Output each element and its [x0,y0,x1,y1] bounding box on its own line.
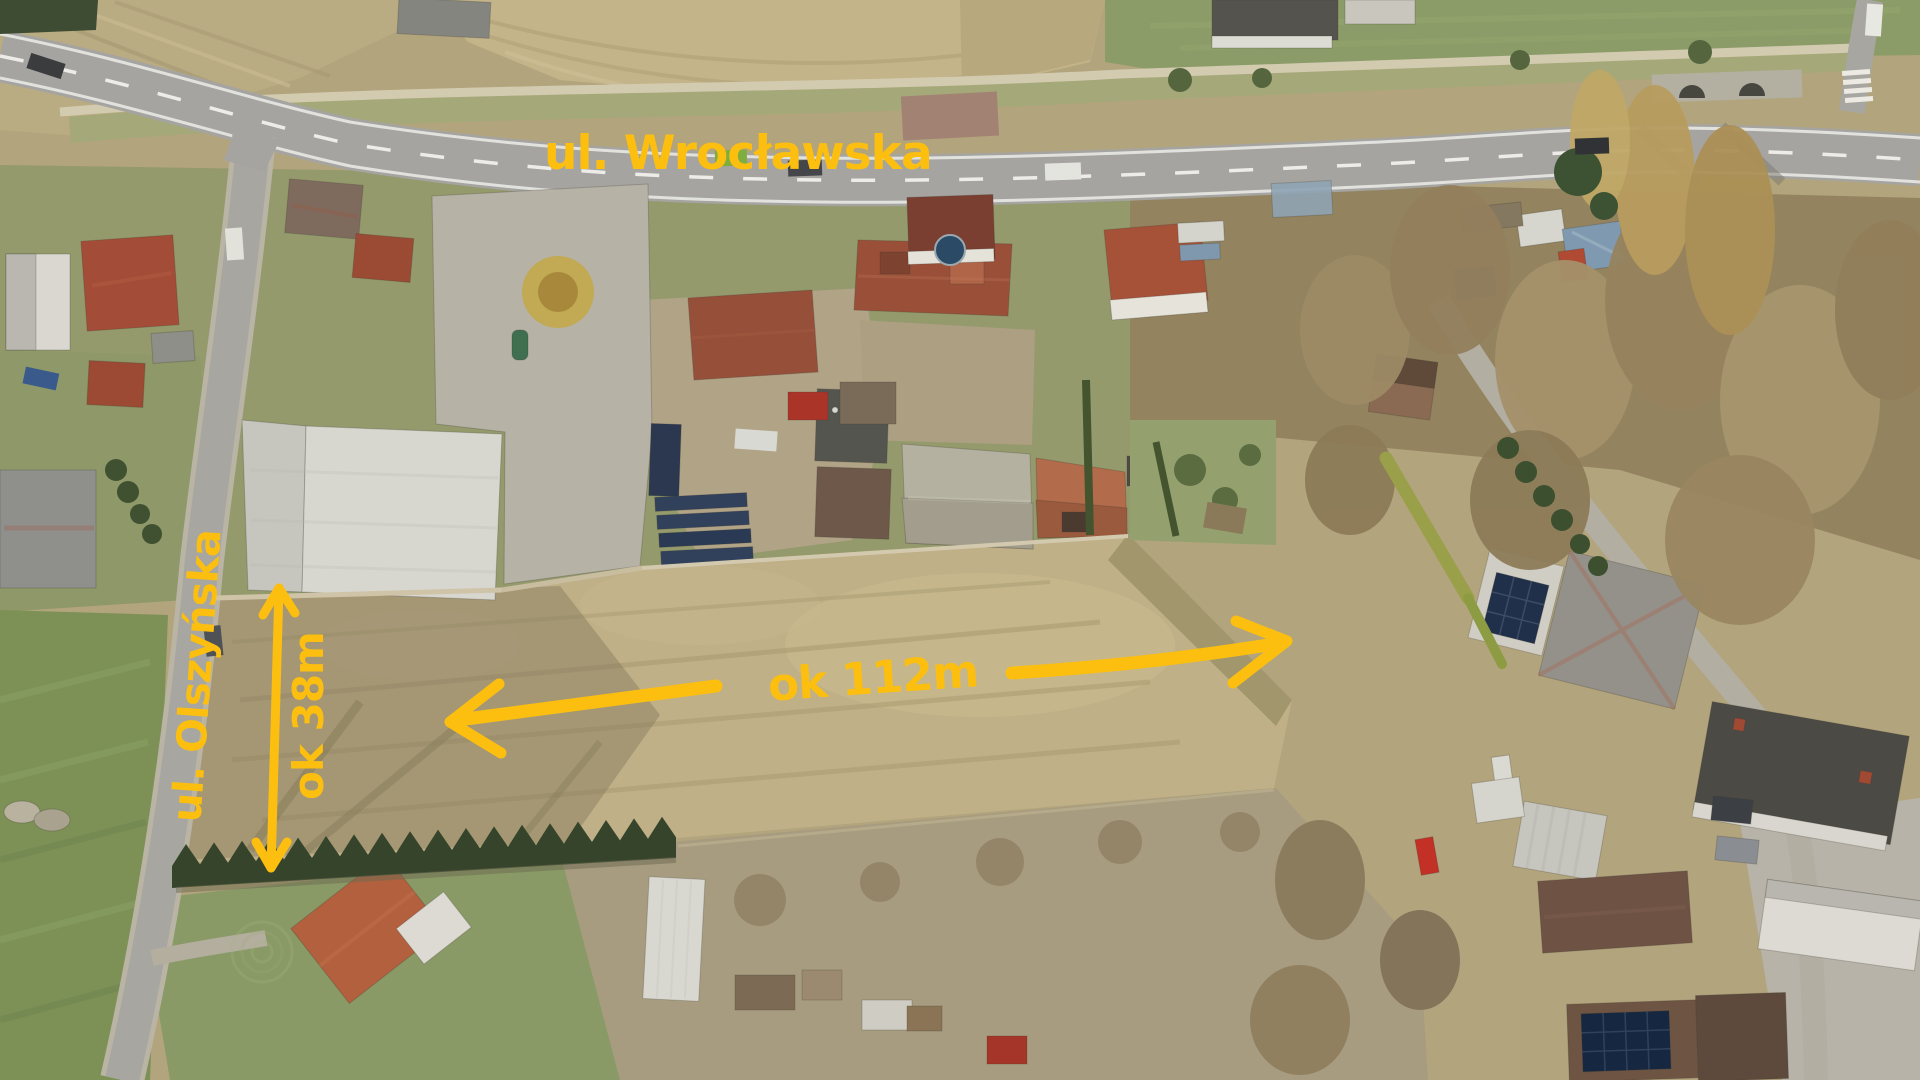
aerial-photo-scene [0,0,1920,1080]
street-label-wroclawska: ul. Wrocławska [544,130,932,177]
length-dimension-label: ok 112m [767,648,980,708]
aerial-photo: ul. Wrocławska ul. Olszyńska ok 38m ok 1… [0,0,1920,1080]
width-dimension-label: ok 38m [288,632,330,800]
